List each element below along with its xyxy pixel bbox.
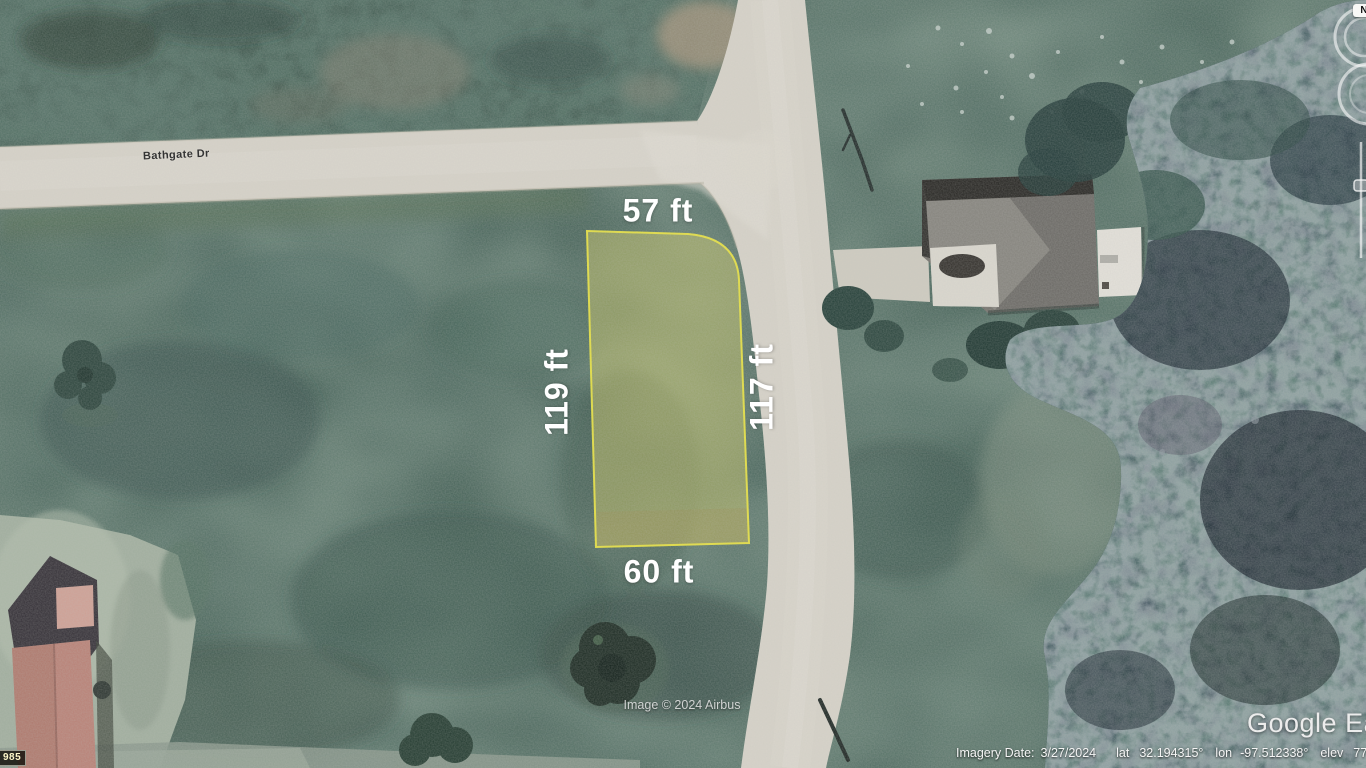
google-earth-viewport[interactable]: Bathgate Dr 57 ft 119 ft 117 ft 60 ft Im… <box>0 0 1366 768</box>
imagery-date-value: 3/27/2024 <box>1041 746 1097 760</box>
parcel-dimension-right: 117 ft <box>744 343 781 431</box>
lon-value: -97.512338° <box>1240 746 1308 760</box>
imagery-date-label: Imagery Date: <box>956 746 1035 760</box>
lon-label: lon <box>1215 746 1232 760</box>
elev-value: 771 ft <box>1353 746 1366 760</box>
parcel-dimension-left: 119 ft <box>539 348 576 436</box>
north-indicator[interactable]: N <box>1353 4 1366 17</box>
lat-value: 32.194315° <box>1139 746 1203 760</box>
parcel-dimension-top: 57 ft <box>623 193 694 230</box>
google-earth-watermark: Google Earth <box>1247 708 1366 739</box>
photo-grain <box>0 0 1366 768</box>
lat-label: lat <box>1116 746 1129 760</box>
imagery-attribution: Image © 2024 Airbus <box>624 698 741 712</box>
satellite-view[interactable] <box>0 0 1366 768</box>
corner-badge: 985 <box>0 750 26 766</box>
elev-label: elev <box>1320 746 1343 760</box>
parcel-dimension-bottom: 60 ft <box>624 554 695 591</box>
status-bar: Imagery Date: 3/27/2024 lat 32.194315° l… <box>956 746 1366 760</box>
